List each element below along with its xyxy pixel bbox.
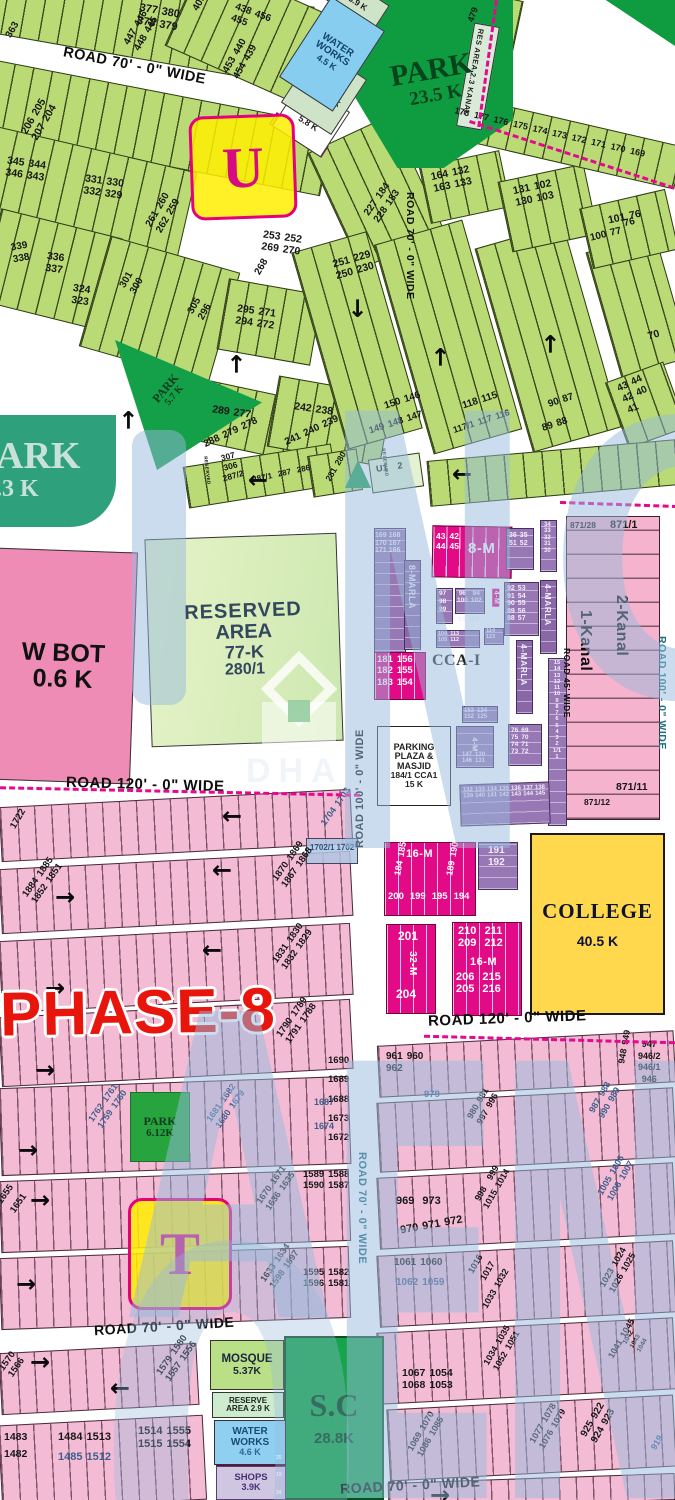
t-marker-letter: T bbox=[160, 1220, 200, 1289]
boundary-dashed bbox=[560, 501, 675, 508]
mosque-size: 5.37K bbox=[233, 1366, 261, 1377]
plot-number: 102 bbox=[471, 597, 482, 604]
plot-numbers: 169168170167171166 bbox=[375, 532, 400, 555]
plot-numbers: 14851512 bbox=[58, 1452, 111, 1464]
plot-number: 1067 bbox=[402, 1368, 425, 1379]
park-6-12k: PARK 6.12K bbox=[130, 1092, 190, 1162]
plot-numbers: 16871674 bbox=[314, 1098, 334, 1131]
plot-number: 268 bbox=[253, 257, 271, 277]
plot-number: 979 bbox=[424, 1090, 440, 1100]
plot-number: 1690 bbox=[328, 1056, 349, 1066]
plot-number: 201 bbox=[398, 930, 418, 943]
plot-number: 961 bbox=[386, 1052, 403, 1063]
park-size: .3 K bbox=[0, 477, 39, 502]
plot-number: 42 bbox=[449, 532, 458, 541]
plot-number: 192 bbox=[488, 858, 505, 869]
8m-label: 8-M bbox=[468, 540, 495, 557]
plot-number: 209 bbox=[458, 938, 476, 950]
plot-numbers: 268 bbox=[253, 257, 271, 277]
plot-number: 56 bbox=[518, 608, 526, 616]
plot-number: 1482 bbox=[4, 1449, 27, 1460]
direction-arrow: → bbox=[35, 1058, 55, 1082]
plot-number: 1054 bbox=[429, 1368, 452, 1379]
plot-number: 19 bbox=[276, 1473, 282, 1478]
mosque-5-37k: MOSQUE 5.37K bbox=[210, 1340, 284, 1390]
plot-number: 269 bbox=[261, 242, 280, 256]
plot-number: 346 bbox=[5, 168, 24, 182]
phase-8-title: PHASE-8 bbox=[0, 972, 411, 1050]
plot-number: 36 bbox=[509, 532, 517, 540]
plot-numbers: 1589158815901587 bbox=[303, 1170, 349, 1192]
map-canvas: PARK 23.5 K PARK 5.7 K ARK .3 K 3.9 K WA… bbox=[0, 0, 675, 1500]
plot-number: 270 bbox=[282, 245, 301, 259]
plot-number: 1053 bbox=[429, 1380, 452, 1391]
plot-number: 946/2 bbox=[638, 1052, 661, 1062]
plot-number: 242 bbox=[293, 401, 312, 415]
direction-arrow: ← bbox=[212, 858, 232, 882]
plot-numbers: 871/12 bbox=[584, 798, 610, 807]
plot-number: 141 bbox=[487, 793, 497, 800]
plot-number: 1484 bbox=[58, 1432, 82, 1444]
plot-number: 139 bbox=[463, 794, 473, 801]
direction-arrow: ← bbox=[452, 462, 472, 486]
plot-number: 871/12 bbox=[584, 798, 610, 807]
plot-number: 1062 bbox=[396, 1278, 418, 1289]
plot-number: 97 bbox=[439, 590, 446, 597]
park-triangle-marker bbox=[345, 460, 371, 488]
direction-arrow: → bbox=[224, 354, 248, 374]
marla4-label: 4-MARLA bbox=[543, 584, 553, 652]
plot-numbers: 201 bbox=[398, 930, 418, 943]
plot-number: 1 bbox=[553, 754, 561, 760]
plot-number: 45 bbox=[449, 542, 458, 551]
plot-number: 1515 bbox=[138, 1439, 162, 1451]
plot-numbers: 210211209212 bbox=[458, 926, 503, 950]
plot-number: 171 bbox=[375, 547, 387, 555]
kanal1-label: 1-Kanal bbox=[576, 610, 594, 755]
park-name: PARK bbox=[143, 1115, 176, 1128]
plot-number: 143 bbox=[511, 792, 521, 799]
plot-number: 194 bbox=[454, 892, 470, 902]
plot-number: 1596 bbox=[303, 1279, 324, 1289]
plot-numbers: 104113105112 bbox=[438, 632, 459, 644]
plot-numbers: 10611060 bbox=[394, 1258, 443, 1269]
plot-number: 1672 bbox=[328, 1133, 349, 1143]
marla8-label: 8-MARLA bbox=[407, 565, 417, 647]
u-marker-letter: U bbox=[221, 133, 265, 201]
plot-number: 200 bbox=[388, 892, 404, 902]
plot-number: 199 bbox=[410, 892, 426, 902]
plot-number: 145 bbox=[535, 791, 545, 798]
plot-numbers: 7669757074717372 bbox=[511, 727, 528, 755]
bot-size: 0.6 K bbox=[32, 665, 93, 693]
plot-number: 329 bbox=[104, 189, 123, 203]
plot-strip bbox=[376, 1087, 675, 1172]
plot-number: 205 bbox=[456, 984, 474, 996]
plot-number: 183 bbox=[377, 678, 393, 688]
plot-numbers: 114123 bbox=[486, 629, 495, 641]
plot-number: 1513 bbox=[86, 1432, 110, 1444]
t-marker: T bbox=[128, 1198, 232, 1310]
plot-number: 25 bbox=[276, 1456, 282, 1461]
cca-label: CCA-I bbox=[432, 652, 481, 670]
plot-number: 343 bbox=[26, 171, 45, 185]
plot-number: 88 bbox=[507, 615, 515, 623]
bot-block: W BOT 0.6 K bbox=[0, 548, 138, 785]
plot-number: 332 bbox=[83, 186, 102, 200]
plot-number: 112 bbox=[450, 638, 459, 644]
plot-numbers: 871/11 bbox=[616, 782, 648, 793]
park-big-left-label: ARK .3 K bbox=[0, 425, 106, 515]
plot-number: 1061 bbox=[394, 1258, 416, 1269]
college-name: COLLEGE bbox=[542, 900, 653, 922]
road-label-45: ROAD 45' WIDE bbox=[562, 648, 572, 748]
direction-arrow: ← bbox=[202, 938, 222, 962]
plot-number: 76 bbox=[628, 209, 642, 223]
plot-numbers: 25193436 bbox=[276, 1456, 282, 1500]
reserved-l4: 280/1 bbox=[225, 661, 266, 679]
sc-size: 28.8K bbox=[314, 1431, 354, 1447]
plot-number: 55 bbox=[518, 600, 526, 608]
reserved-area-77k: RESERVED AREA 77-K 280/1 bbox=[144, 533, 343, 748]
plot-number: 54 bbox=[518, 593, 526, 601]
plot-numbers: 1067105410681053 bbox=[402, 1368, 453, 1392]
plot-number: 35 bbox=[520, 532, 528, 540]
kanal2-label: 2-Kanal bbox=[612, 595, 630, 740]
plot-numbers: 92539154905589568857 bbox=[507, 585, 526, 623]
plot-number: 212 bbox=[484, 938, 502, 950]
plot-number: 154 bbox=[397, 678, 413, 688]
plot-number: 1689 bbox=[328, 1075, 349, 1085]
plot-number: 181 bbox=[377, 655, 393, 665]
park-name: ARK bbox=[0, 437, 80, 477]
plot-numbers: 147130146131 bbox=[462, 752, 485, 765]
plot-number: 1587 bbox=[328, 1181, 349, 1191]
plot-numbers: 336337 bbox=[44, 251, 65, 277]
plot-numbers: 947946/2946/1946 bbox=[638, 1040, 661, 1085]
u-marker: U bbox=[188, 113, 298, 221]
plot-numbers: 979899 bbox=[439, 590, 446, 613]
plot-number: 946 bbox=[638, 1075, 661, 1085]
plot-number: 1512 bbox=[86, 1452, 110, 1464]
park-corner-top-right bbox=[598, 0, 675, 46]
plot-numbers: 36355152 bbox=[509, 532, 528, 547]
plot-number: 155 bbox=[397, 666, 413, 676]
plot-number: 1588 bbox=[328, 1170, 349, 1180]
plot-numbers: 200199195194193 bbox=[388, 892, 491, 902]
road-label-100-right: ROAD 100' - 0" WIDE bbox=[656, 636, 668, 824]
plot-numbers: 969973 bbox=[396, 1196, 441, 1208]
plot-number: 90 bbox=[507, 600, 515, 608]
plot-number: 142 bbox=[499, 792, 509, 799]
direction-arrow: ← bbox=[222, 804, 242, 828]
plot-number: 92 bbox=[507, 585, 515, 593]
plot-number: 871/28 bbox=[570, 521, 596, 530]
plot-number: 51 bbox=[509, 540, 517, 548]
plot-number: 75 bbox=[511, 734, 518, 741]
plot-number: 146 bbox=[462, 758, 472, 764]
road-label-70-bottom-vertical: ROAD 70' - 0" WIDE bbox=[356, 1152, 368, 1337]
plot-number: 144 bbox=[523, 791, 533, 798]
16m-label: 16-M bbox=[406, 848, 433, 860]
plot-number: 103 bbox=[468, 616, 479, 623]
plot-number: 96 bbox=[457, 590, 468, 597]
plot-number: 337 bbox=[44, 263, 63, 277]
plot-number: 76 bbox=[511, 727, 518, 734]
plot-number: 1581 bbox=[328, 1279, 349, 1289]
plot-number: 1514 bbox=[138, 1426, 162, 1438]
plot-number: 72 bbox=[521, 748, 528, 755]
plot-numbers: 339338 bbox=[10, 241, 30, 266]
plot-number: 52 bbox=[520, 540, 528, 548]
plot-number: 30 bbox=[544, 548, 551, 554]
plot-number: 69 bbox=[521, 727, 528, 734]
plot-numbers: 961960962 bbox=[386, 1052, 423, 1075]
plot-number: 168 bbox=[389, 532, 401, 540]
ww-size: 4.6 K bbox=[239, 1448, 261, 1457]
plot-number: 1059 bbox=[422, 1278, 444, 1289]
direction-arrow: → bbox=[18, 1138, 38, 1162]
plot-number: 294 bbox=[235, 316, 254, 330]
dha-watermark-text: DHA bbox=[246, 752, 344, 791]
plot-number: 100 bbox=[457, 597, 468, 604]
plot-number: 1702 bbox=[336, 844, 354, 853]
college-block: COLLEGE 40.5 K bbox=[530, 833, 665, 1015]
plot-number: 1674 bbox=[314, 1122, 334, 1132]
plot-number: 1595 bbox=[303, 1268, 324, 1278]
plot-number: 140 bbox=[475, 793, 485, 800]
plot-number: 93 bbox=[458, 616, 465, 623]
plot-number: 1483 bbox=[4, 1432, 27, 1443]
plot-number: 1687 bbox=[314, 1098, 334, 1108]
plot-numbers: 1514155515151554 bbox=[138, 1426, 191, 1451]
plot-numbers: 9694100102 bbox=[457, 590, 482, 604]
plot-number: 272 bbox=[256, 319, 275, 333]
parking-l5: 15 K bbox=[405, 780, 423, 789]
plot-numbers: 10621059 bbox=[396, 1278, 445, 1289]
shops-size: 3.9K bbox=[241, 1483, 260, 1492]
plot-number: 57 bbox=[518, 615, 526, 623]
4m-label: 4-M bbox=[492, 589, 499, 607]
direction-arrow: → bbox=[428, 347, 452, 367]
plot-number: 1582 bbox=[328, 1268, 349, 1278]
plot-number: 946/1 bbox=[638, 1063, 661, 1073]
plot-number: 1555 bbox=[166, 1426, 190, 1438]
direction-arrow: → bbox=[30, 1350, 50, 1374]
plot-numbers: 14831482 bbox=[4, 1432, 27, 1461]
direction-arrow: ← bbox=[248, 468, 268, 492]
plot-number: 973 bbox=[422, 1196, 440, 1208]
direction-arrow: → bbox=[30, 1188, 50, 1212]
plot-number: 1060 bbox=[420, 1258, 442, 1269]
plot-number: 91 bbox=[507, 593, 515, 601]
16m-label: 16-M bbox=[470, 956, 497, 968]
plot-numbers: 153124152125 bbox=[464, 708, 487, 721]
plot-number: 216 bbox=[482, 984, 500, 996]
plot-number: 960 bbox=[407, 1052, 424, 1063]
direction-arrow: → bbox=[346, 298, 370, 318]
plot-number: 71 bbox=[521, 741, 528, 748]
plot-number: 53 bbox=[518, 585, 526, 593]
plot-numbers: 93103 bbox=[458, 616, 479, 623]
plot-number: 131 bbox=[475, 758, 485, 764]
plot-numbers: 1702/11702 bbox=[310, 844, 354, 853]
plot-number: 125 bbox=[477, 714, 487, 720]
plot-number: 191 bbox=[488, 846, 505, 857]
plot-number: 169 bbox=[375, 532, 387, 540]
plot-number: 44 bbox=[436, 542, 445, 551]
road-label-100-left: ROAD 100' - 0" WIDE bbox=[354, 650, 366, 848]
plot-number: 99 bbox=[439, 606, 446, 613]
plot-number: 323 bbox=[70, 295, 89, 309]
plot-number: 195 bbox=[432, 892, 448, 902]
plot-numbers: 871/28 bbox=[570, 521, 596, 530]
plot-number: 156 bbox=[397, 655, 413, 665]
road-label-70-vertical: ROAD 70' - 0" WIDE bbox=[404, 192, 416, 344]
sc-name: S.C bbox=[310, 1389, 359, 1423]
plot-number: 70 bbox=[521, 734, 528, 741]
park-size: 6.12K bbox=[146, 1128, 174, 1140]
reserved-l2: AREA bbox=[215, 621, 272, 644]
plot-number: 43 bbox=[436, 532, 445, 541]
plot-number: 1485 bbox=[58, 1452, 82, 1464]
parking-plaza-masjid: PARKING PLAZA & MASJID 184/1 CCA1 15 K bbox=[377, 726, 451, 806]
plot-numbers: 206215205216 bbox=[456, 972, 501, 996]
plot-numbers: 3433323130 bbox=[544, 522, 551, 554]
plot-numbers: 43424445 bbox=[436, 532, 459, 551]
marla4-label: 4-MARLA bbox=[519, 644, 529, 712]
plot-number: 1589 bbox=[303, 1170, 324, 1180]
plot-number: 289 bbox=[211, 404, 230, 418]
plot-number: 193 bbox=[475, 892, 491, 902]
direction-arrow: → bbox=[16, 1272, 36, 1296]
plot-numbers: 324323 bbox=[70, 283, 91, 309]
plot-number: 1068 bbox=[402, 1380, 425, 1391]
plot-number: 152 bbox=[464, 714, 474, 720]
plot-number: 962 bbox=[386, 1064, 403, 1075]
res-line2: AREA 2.9 K bbox=[226, 1405, 270, 1413]
plot-numbers: 1595158215961581 bbox=[303, 1268, 349, 1290]
plot-number: 73 bbox=[511, 748, 518, 755]
plot-number: 969 bbox=[396, 1196, 414, 1208]
4m-label: 4-M bbox=[471, 737, 480, 751]
plot-number: 167 bbox=[389, 540, 401, 548]
plot-number: 1554 bbox=[166, 1439, 190, 1451]
plot-number: 98 bbox=[439, 598, 446, 605]
plot-number: 871/1 bbox=[610, 520, 638, 532]
plot-number: 123 bbox=[486, 635, 495, 641]
sc-block: S.C 28.8K bbox=[284, 1336, 384, 1500]
plot-numbers: 253252269270 bbox=[261, 229, 303, 258]
plot-number: 74 bbox=[511, 741, 518, 748]
plot-numbers: 979 bbox=[424, 1090, 440, 1100]
direction-arrow: → bbox=[55, 885, 75, 909]
plot-number: 182 bbox=[377, 666, 393, 676]
plot-number: 1590 bbox=[303, 1181, 324, 1191]
plot-numbers: 151413121110987654321/11 bbox=[553, 660, 561, 760]
direction-arrow: → bbox=[116, 410, 140, 430]
plot-number: 105 bbox=[438, 638, 447, 644]
plot-numbers: 14841513 bbox=[58, 1432, 111, 1444]
plot-numbers: 191192 bbox=[488, 846, 505, 869]
plot-number: 34 bbox=[276, 1491, 282, 1496]
college-size: 40.5 K bbox=[577, 934, 618, 949]
plot-number: 89 bbox=[507, 608, 515, 616]
plot-number: 94 bbox=[471, 590, 482, 597]
reserve-area-2-9k: RESERVE AREA 2.9 K bbox=[212, 1392, 284, 1418]
plot-number: 170 bbox=[375, 540, 387, 548]
plot-numbers: 871/1 bbox=[610, 520, 638, 532]
plot-number: 871/11 bbox=[616, 782, 648, 793]
mosque-name: MOSQUE bbox=[221, 1353, 272, 1365]
direction-arrow: → bbox=[538, 334, 562, 354]
plot-number: 166 bbox=[389, 547, 401, 555]
plot-numbers: 181156182155183154 bbox=[377, 655, 413, 688]
direction-arrow: ← bbox=[110, 1376, 130, 1400]
